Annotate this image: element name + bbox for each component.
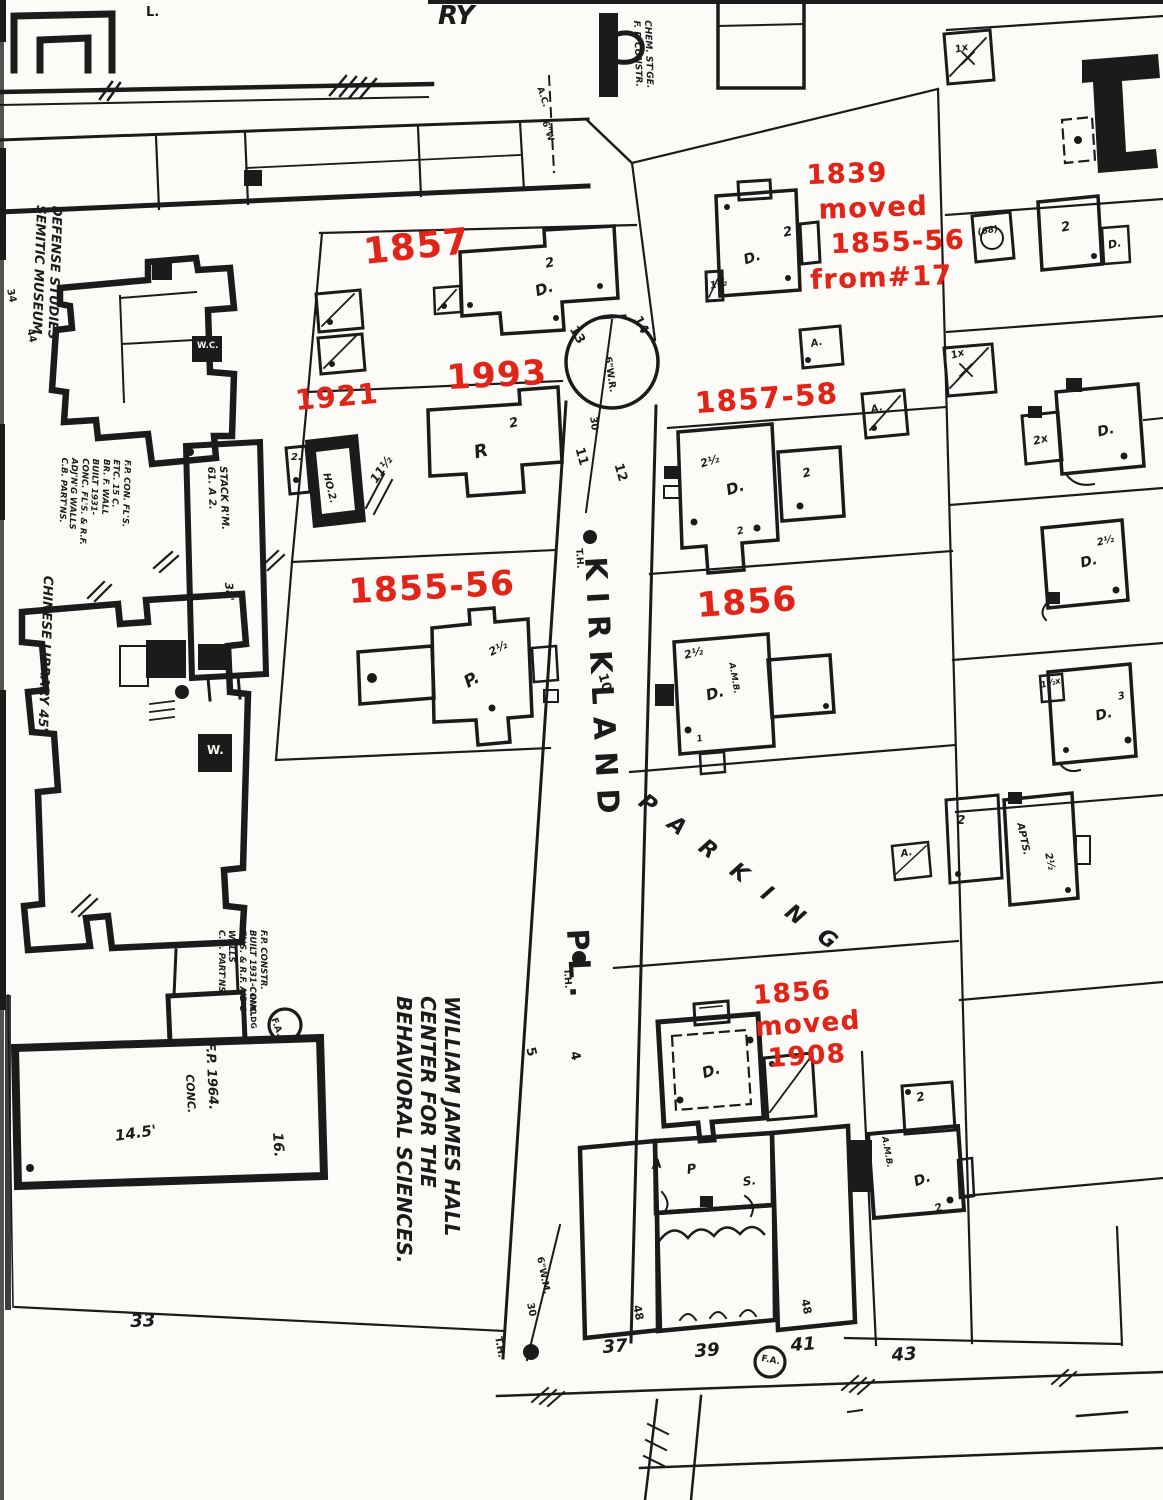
house-1857-58 <box>678 424 778 573</box>
house-1855 <box>432 608 532 745</box>
bottom-row-building <box>580 1126 855 1377</box>
sanborn-map-page: KIRKLANDPL.PARKING1314111210546"W.R.306"… <box>0 0 1163 1500</box>
w-room <box>198 734 232 772</box>
water-pipe <box>549 76 554 172</box>
hydrant-th-3 <box>523 1344 539 1360</box>
wc-room <box>192 336 222 362</box>
right-column-houses <box>892 30 1163 905</box>
tower-building <box>599 13 618 97</box>
chinese-library-building <box>22 582 248 950</box>
house-1993 <box>428 387 562 496</box>
house-1856 <box>674 634 774 754</box>
hydrant-th-1 <box>583 530 597 544</box>
hydrant-th-2 <box>572 951 586 965</box>
bottom-streets <box>497 1370 1163 1500</box>
fire-alarm-circle-bottom <box>755 1347 785 1377</box>
houses-east <box>655 180 908 1141</box>
semitic-museum-building <box>52 258 234 464</box>
houses-west <box>286 226 618 745</box>
top-left-buildings <box>0 0 804 212</box>
map-linework <box>0 0 1163 1500</box>
william-james-hall-building <box>15 946 324 1186</box>
